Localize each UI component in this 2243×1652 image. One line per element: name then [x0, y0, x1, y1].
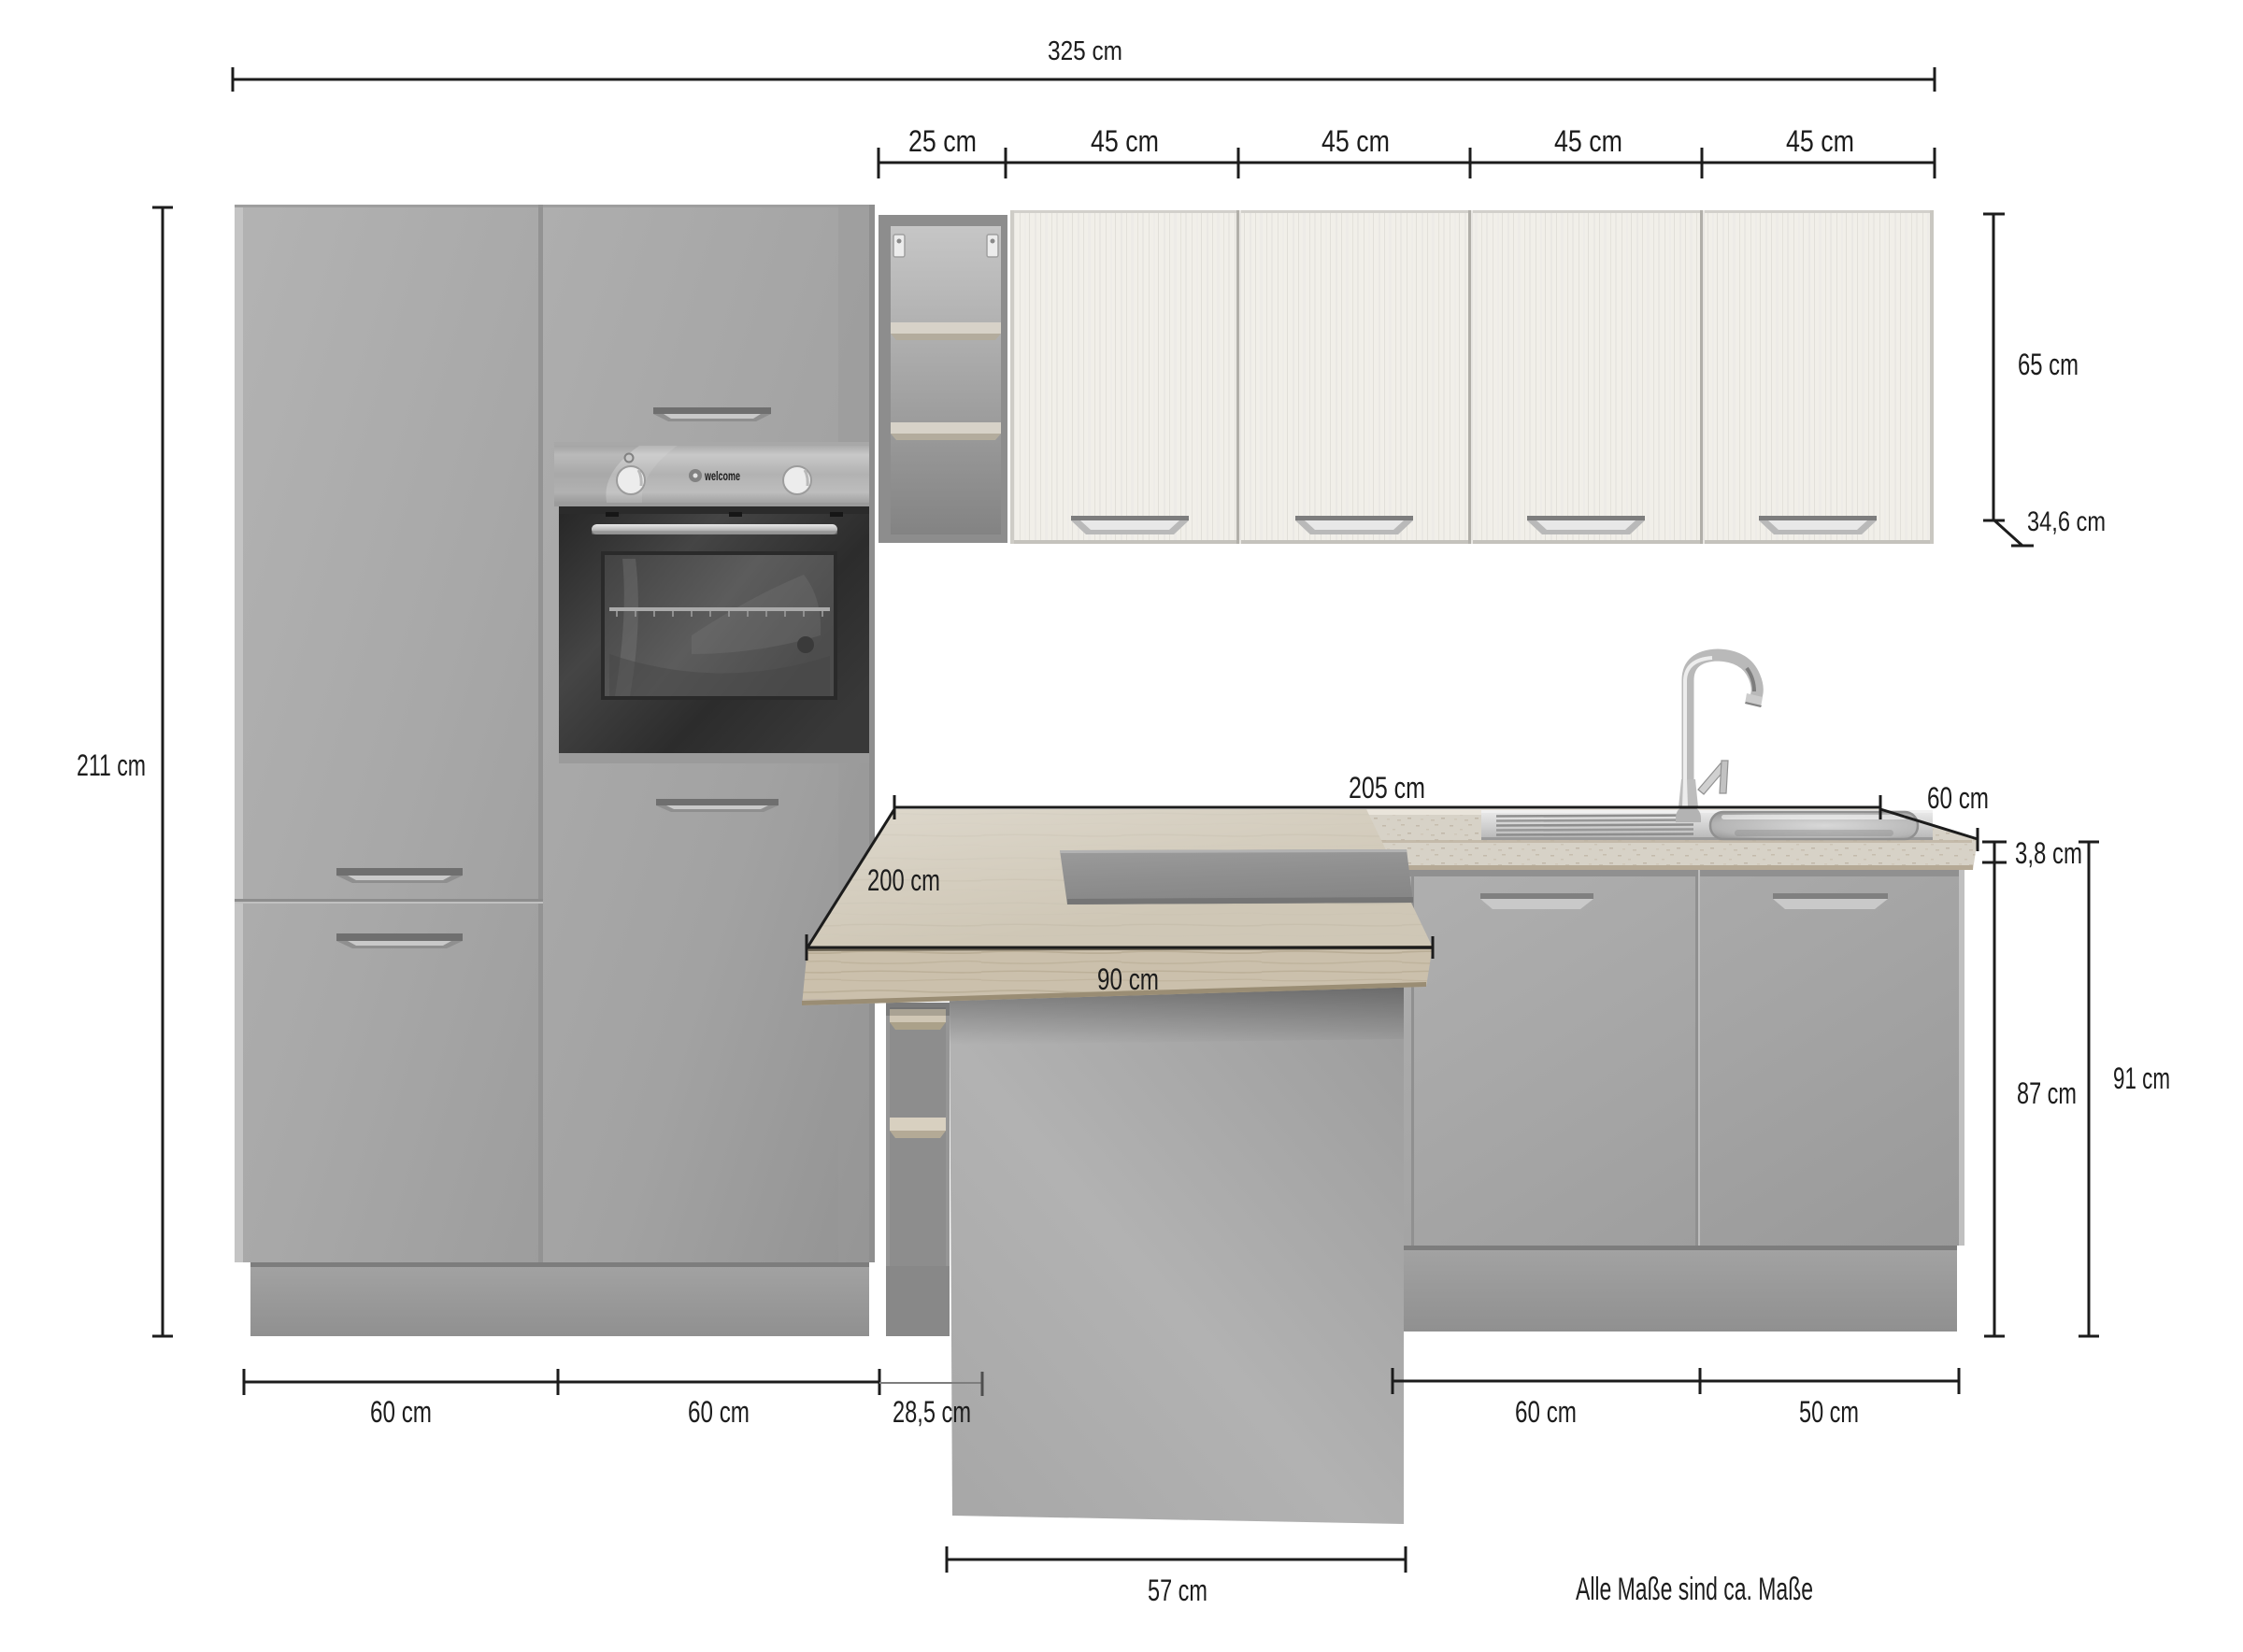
svg-text:57 cm: 57 cm: [1148, 1574, 1207, 1607]
svg-text:3,8 cm: 3,8 cm: [2015, 836, 2082, 870]
svg-text:50 cm: 50 cm: [1799, 1395, 1859, 1429]
svg-text:60 cm: 60 cm: [1515, 1395, 1577, 1429]
svg-text:Alle Maße sind ca. Maße: Alle Maße sind ca. Maße: [1576, 1572, 1813, 1607]
svg-text:200 cm: 200 cm: [867, 863, 940, 897]
svg-text:90 cm: 90 cm: [1097, 962, 1159, 996]
svg-text:325 cm: 325 cm: [1048, 36, 1122, 66]
svg-text:60 cm: 60 cm: [370, 1395, 432, 1429]
svg-text:60 cm: 60 cm: [688, 1395, 750, 1429]
svg-text:34,6 cm: 34,6 cm: [2027, 506, 2106, 537]
svg-text:45 cm: 45 cm: [1786, 124, 1854, 158]
svg-text:205 cm: 205 cm: [1349, 771, 1425, 805]
svg-text:welcome: welcome: [704, 469, 740, 483]
svg-text:65 cm: 65 cm: [2018, 348, 2079, 381]
svg-text:45 cm: 45 cm: [1554, 124, 1622, 158]
svg-text:60 cm: 60 cm: [1927, 781, 1989, 815]
svg-text:87 cm: 87 cm: [2017, 1076, 2077, 1110]
svg-text:211 cm: 211 cm: [77, 748, 146, 782]
svg-text:45 cm: 45 cm: [1091, 124, 1159, 158]
svg-text:91 cm: 91 cm: [2113, 1061, 2170, 1095]
svg-text:45 cm: 45 cm: [1322, 124, 1390, 158]
svg-text:28,5 cm: 28,5 cm: [893, 1395, 971, 1429]
svg-text:25 cm: 25 cm: [908, 124, 977, 158]
